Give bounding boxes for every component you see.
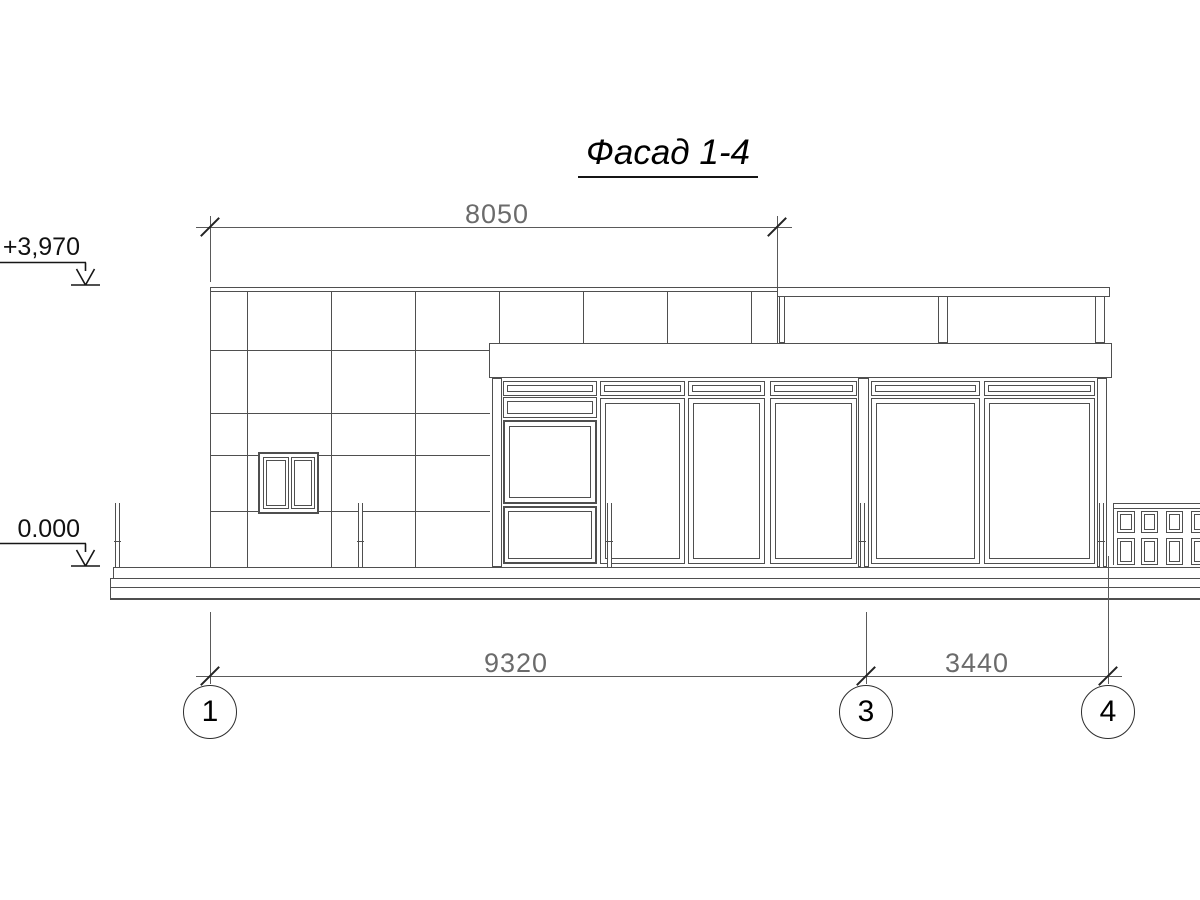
- railing-post: [860, 503, 865, 568]
- drawing-title: Фасад 1-4: [578, 133, 758, 178]
- roof-rail-post: [1095, 296, 1105, 343]
- railing-post: [358, 503, 363, 568]
- tile-joint-vertical: [667, 291, 668, 343]
- railing-post-tick: [357, 541, 364, 542]
- railing-post: [1099, 503, 1104, 568]
- bottom-dimension-label-1-3: 9320: [446, 648, 586, 679]
- axis-number: 1: [202, 695, 219, 729]
- fence-cell: [1141, 538, 1158, 565]
- tile-joint-vertical: [583, 291, 584, 343]
- glazing-panel: [770, 398, 857, 564]
- small-window-pane: [291, 457, 315, 509]
- glazing-transom: [770, 381, 857, 396]
- bottom-dimension-label-3-4: 3440: [907, 648, 1047, 679]
- fence-top-rail: [1113, 503, 1200, 509]
- platform-step: [110, 587, 1200, 600]
- axis-bubble-1: 1: [183, 685, 237, 739]
- fence-cell: [1191, 538, 1200, 565]
- entrance-window-glass: [509, 426, 591, 498]
- top-dimension-label: 8050: [427, 199, 567, 230]
- axis-line-4: [1108, 556, 1109, 684]
- railing-post-tick: [859, 541, 866, 542]
- glazing-panel: [871, 398, 980, 564]
- fence-cell: [1166, 538, 1183, 565]
- fence-cell: [1141, 511, 1158, 533]
- tile-joint-horizontal: [210, 350, 490, 351]
- elevation-ground-arrow-icon: [0, 536, 105, 572]
- glazing-panel: [984, 398, 1095, 564]
- railing-post: [607, 503, 612, 568]
- railing-post-tick: [114, 541, 121, 542]
- railing-post: [115, 503, 120, 568]
- wall-left-edge: [210, 287, 211, 567]
- glazing-transom: [871, 381, 980, 396]
- axis-number: 3: [858, 695, 875, 729]
- tile-joint-vertical: [751, 291, 752, 343]
- fence-cell: [1191, 511, 1200, 533]
- tile-joint-vertical: [415, 291, 416, 567]
- parapet-top-inner-line: [210, 291, 777, 292]
- tile-joint-vertical: [247, 291, 248, 567]
- glazing-panel: [600, 398, 685, 564]
- glazing-transom: [600, 381, 685, 396]
- roof-rail-post: [779, 296, 785, 343]
- glazing-lower-panel: [503, 506, 597, 564]
- axis-bubble-4: 4: [1081, 685, 1135, 739]
- tile-joint-horizontal: [210, 413, 490, 414]
- fence-cell: [1117, 511, 1135, 533]
- elevation-parapet-arrow-icon: [0, 255, 105, 291]
- fascia-band: [489, 343, 1112, 378]
- glazing-transom: [984, 381, 1095, 396]
- roof-rail-post: [938, 296, 948, 343]
- storefront-column: [492, 378, 502, 567]
- railing-post-tick: [606, 541, 613, 542]
- fence-cell: [1117, 538, 1135, 565]
- fence-cell: [1166, 511, 1183, 533]
- facade-drawing-sheet: Фасад 1-4 8050 +3,970 0.000: [0, 0, 1200, 900]
- glazing-transom: [503, 397, 597, 418]
- tile-joint-horizontal: [210, 455, 490, 456]
- railing-post-tick: [1098, 541, 1105, 542]
- axis-number: 4: [1100, 695, 1117, 729]
- glazing-transom: [503, 381, 597, 396]
- fence-left-edge: [1113, 509, 1114, 565]
- tile-joint-horizontal: [210, 511, 490, 512]
- axis-bubble-3: 3: [839, 685, 893, 739]
- glazing-transom: [688, 381, 765, 396]
- small-window-pane: [263, 457, 289, 509]
- glazing-panel: [688, 398, 765, 564]
- tile-joint-vertical: [331, 291, 332, 567]
- tile-joint-vertical: [499, 291, 500, 343]
